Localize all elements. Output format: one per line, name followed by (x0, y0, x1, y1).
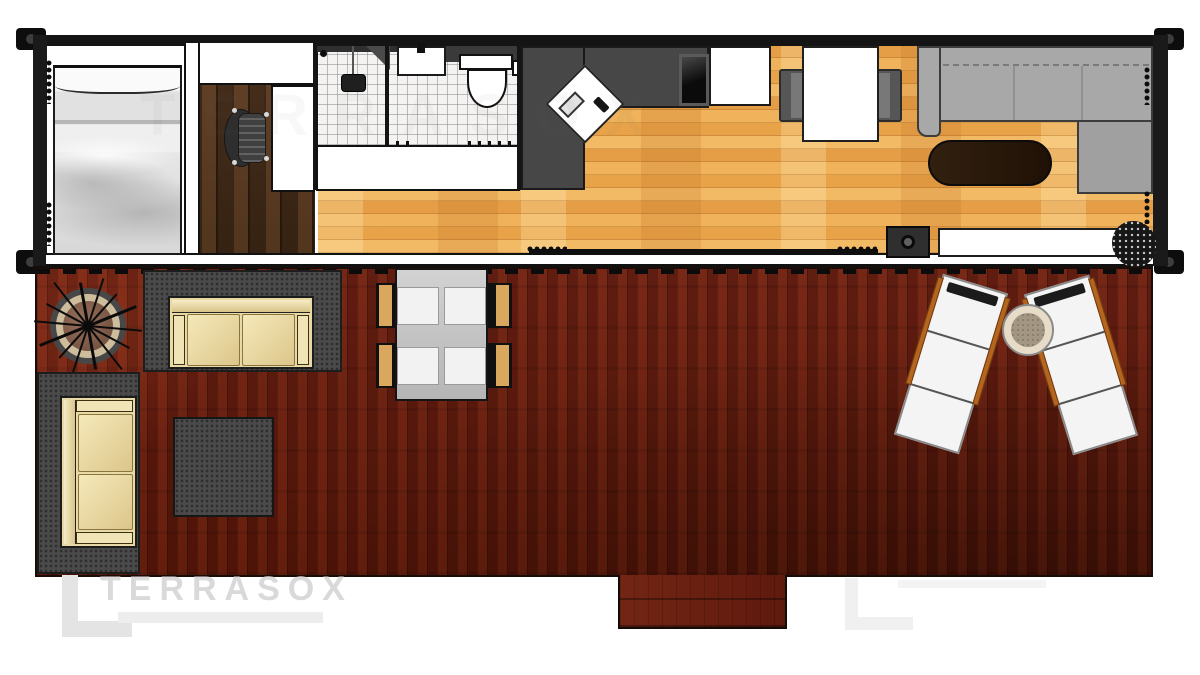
chair-wood-back (496, 285, 509, 326)
door-curtain-left (527, 245, 567, 254)
toilet-tank (459, 54, 513, 70)
bathroom-vanity-counter (316, 145, 520, 191)
coffee-table (928, 140, 1052, 186)
deck-step (618, 575, 787, 629)
door-curtain-right (837, 245, 877, 254)
sofa-arm-top (76, 400, 133, 412)
watermark-top: TERRASOX (140, 82, 670, 149)
watermark-tagline-bar (118, 612, 323, 623)
shower-hose (352, 46, 354, 76)
lounger-seam (911, 383, 973, 404)
floor-plan-canvas: TERRASOX (0, 0, 1200, 675)
sink-faucet-icon (417, 43, 425, 53)
sofa-backrest (64, 400, 76, 544)
cooktop (679, 54, 709, 106)
sofa-cushion-divider (1081, 66, 1083, 120)
chair-wood-back (379, 285, 392, 326)
lounger-seam (1059, 384, 1121, 405)
chair-wood-back (496, 345, 509, 386)
side-table-wicker (1011, 313, 1045, 347)
loveseat-arm-right (297, 315, 309, 365)
watermark-tagline-bar (898, 580, 1046, 588)
outdoor-chair-cushion (444, 347, 486, 385)
refrigerator (709, 46, 771, 106)
loveseat-cushion (187, 314, 240, 366)
sliding-door-track (529, 249, 878, 255)
outdoor-sofa (60, 396, 137, 548)
window-curtain-left-1 (45, 60, 54, 104)
dining-table (802, 46, 879, 142)
loveseat-cushion (242, 314, 295, 366)
sectional-sofa-main (939, 46, 1153, 122)
outdoor-chair-cushion (444, 287, 486, 325)
wood-stove (886, 226, 930, 258)
dining-chair-right (876, 69, 902, 122)
shower-control-icon (320, 50, 327, 57)
office-cabinet (200, 43, 315, 85)
outdoor-loveseat (168, 296, 314, 369)
sectional-sofa-chaise (1077, 120, 1153, 194)
window-curtain-right-2 (1143, 191, 1152, 224)
chair-seat-panel (879, 73, 890, 118)
sofa-cushion (78, 474, 133, 530)
hallway-floor (318, 188, 521, 253)
window-curtain-left-2 (45, 202, 54, 246)
ottoman (173, 417, 274, 517)
outdoor-chair-cushion (397, 347, 439, 385)
chair-seat-panel (791, 73, 802, 118)
loveseat-arm-left (173, 315, 185, 365)
window-curtain-right-1 (1143, 67, 1152, 105)
lounger-seam (927, 330, 989, 351)
sofa-armrest (917, 46, 941, 137)
sofa-cushion-divider (1013, 66, 1015, 120)
chair-wood-back (379, 345, 392, 386)
round-side-table (1002, 304, 1054, 356)
watermark-brand-text: TERRASOX (100, 570, 353, 609)
potted-plant (1112, 221, 1156, 267)
loveseat-backrest (172, 300, 310, 313)
sofa-arm-bottom (76, 532, 133, 544)
sofa-back-seam (943, 64, 1149, 66)
fire-pit (50, 288, 126, 364)
container-wall-right (1153, 35, 1168, 266)
outdoor-chair-cushion (397, 287, 439, 325)
stove-ring-icon (901, 235, 915, 249)
sofa-cushion (78, 414, 133, 472)
